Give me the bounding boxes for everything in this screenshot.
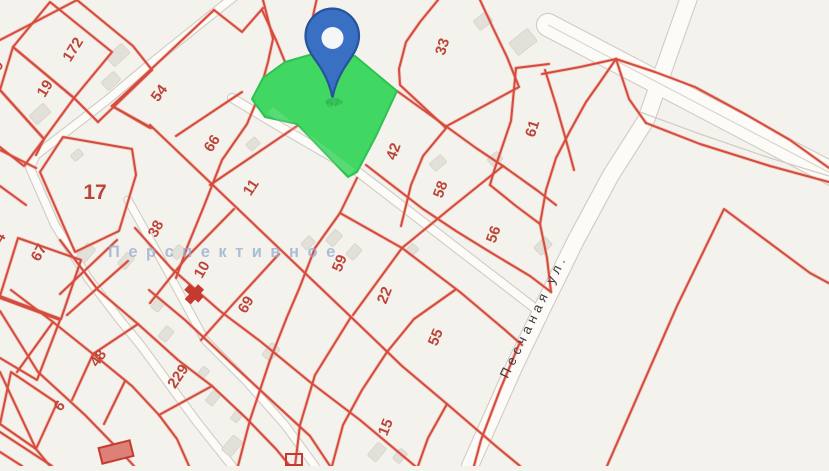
svg-text:Перспективное: Перспективное	[108, 243, 344, 261]
svg-text:17: 17	[83, 181, 106, 204]
